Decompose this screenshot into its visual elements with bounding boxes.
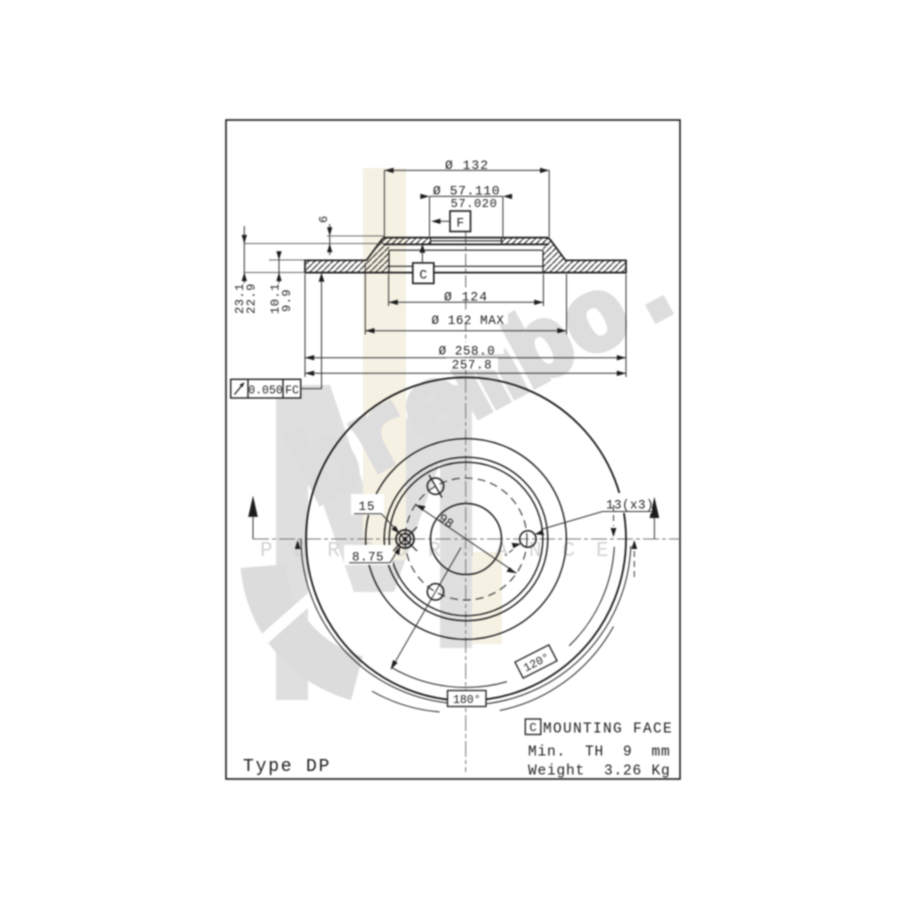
svg-text:Type DP: Type DP	[243, 757, 331, 777]
svg-text:Ø 258.0: Ø 258.0	[439, 345, 496, 359]
svg-text:57.020: 57.020	[451, 197, 498, 211]
svg-text:brembo.: brembo.	[276, 229, 705, 532]
svg-text:MOUNTING FACE: MOUNTING FACE	[543, 722, 673, 738]
svg-text:C: C	[529, 721, 536, 735]
svg-text:22.9: 22.9	[245, 283, 259, 314]
svg-text:257.8: 257.8	[452, 359, 493, 373]
svg-text:C: C	[419, 268, 427, 283]
svg-text:6: 6	[317, 216, 331, 223]
svg-text:Ø 162 MAX: Ø 162 MAX	[432, 314, 505, 328]
svg-text:F: F	[456, 216, 464, 231]
svg-text:Min. TH 9 mm: Min. TH 9 mm	[528, 745, 671, 761]
svg-text:15: 15	[358, 500, 375, 514]
svg-text:Ø 132: Ø 132	[445, 158, 489, 173]
svg-text:FC: FC	[285, 385, 299, 398]
svg-text:PERFORMANCE: PERFORMANCE	[260, 540, 630, 563]
svg-text:Weight 3.26 Kg: Weight 3.26 Kg	[528, 764, 671, 780]
svg-text:9.9: 9.9	[280, 289, 294, 312]
svg-text:0.050: 0.050	[248, 385, 283, 398]
svg-text:180°: 180°	[453, 694, 481, 707]
svg-text:Ø 124: Ø 124	[444, 290, 488, 305]
